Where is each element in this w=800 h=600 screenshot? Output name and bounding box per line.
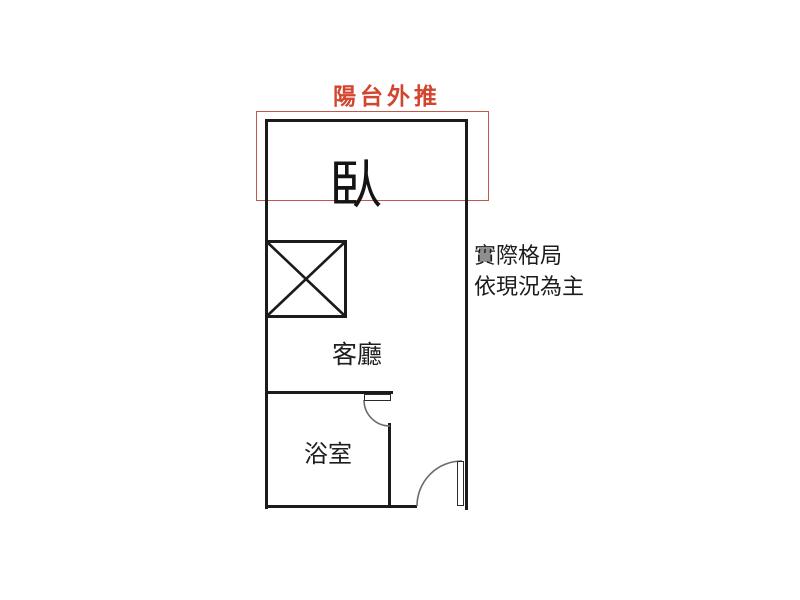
floor-plan-canvas: 陽台外推 臥 客廳 浴室 實際格局 依現況為主: [0, 0, 800, 600]
bathroom-label: 浴室: [304, 442, 352, 468]
wall-right: [465, 119, 468, 510]
note-line-2: 依現況為主: [474, 271, 584, 302]
wall-bottom: [265, 505, 417, 508]
shaft-xbox: [265, 240, 347, 318]
balcony-label: 陽台外推: [333, 84, 441, 109]
wall-top: [265, 119, 468, 122]
bathroom-door-leaf: [364, 394, 391, 401]
entry-door-arc: [417, 461, 462, 506]
bedroom-label: 臥: [329, 157, 382, 215]
bathroom-wall-right: [388, 423, 391, 508]
entry-door-leaf: [457, 461, 464, 506]
layout-disclaimer-note: 實際格局 依現況為主: [474, 240, 584, 302]
bathroom-door-arc: [364, 400, 390, 426]
living-room-label: 客廳: [332, 342, 382, 370]
note-line-1: 實際格局: [474, 240, 584, 271]
